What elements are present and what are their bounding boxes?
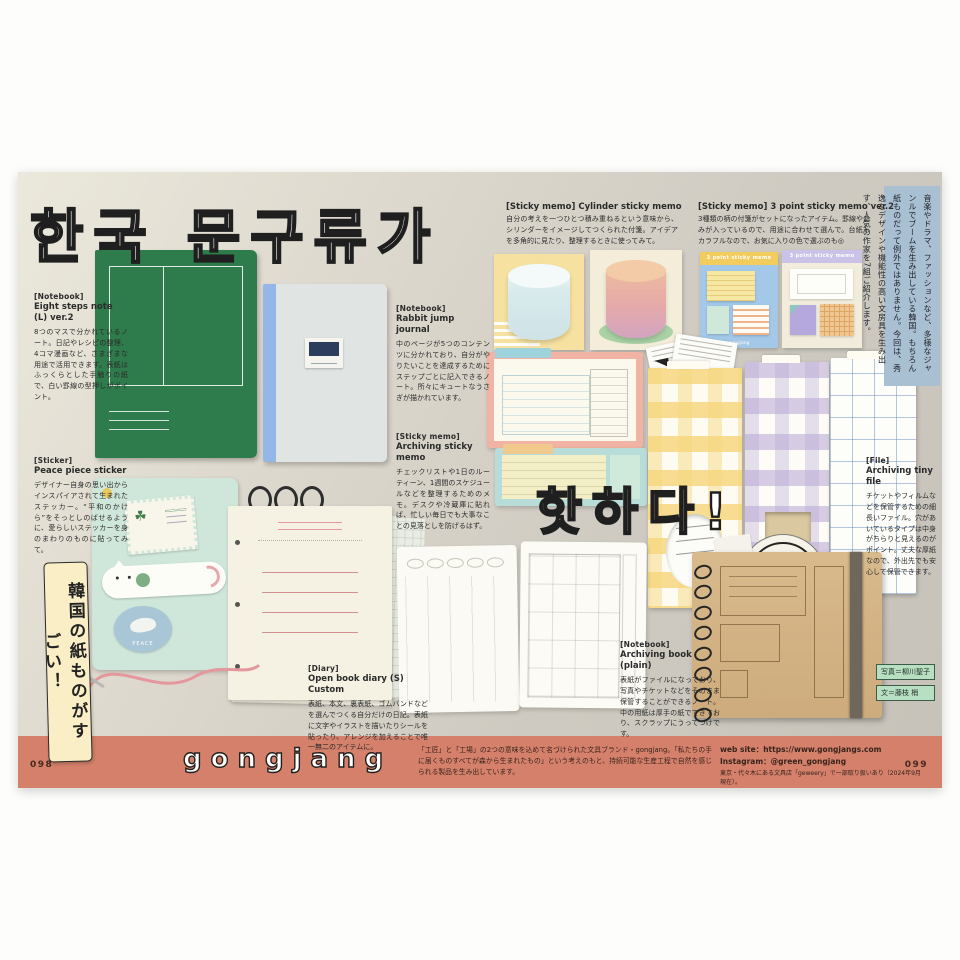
caption-open-book-diary: [Diary] Open book diary (S) Custom 表紙、本文…	[308, 664, 428, 753]
cylinder-memo-card-blue	[494, 254, 584, 350]
three-point-memo-card-2: 3 point sticky memo	[782, 250, 862, 348]
caption-category: [Notebook]	[34, 292, 128, 301]
caption-description: チェックリストや1日のルーティーン、1週間のスケジュールなどを整理するためのメモ…	[396, 467, 490, 532]
caption-archiving-sticky-memo: [Sticky memo] Archiving sticky memo チェック…	[396, 432, 490, 532]
caption-name: Archiving tiny file	[866, 466, 936, 488]
three-point-memo-card-1: 3 point sticky memo gongjang	[700, 252, 778, 348]
striped-memo	[733, 305, 769, 335]
file-tab	[667, 361, 709, 369]
card-header-label: 3 point sticky memo	[782, 250, 862, 263]
caption-category: [Diary]	[308, 664, 428, 673]
caption-category: [File]	[866, 456, 936, 465]
caption-category: [Sticky memo]	[506, 202, 575, 212]
pink-double-rule	[278, 522, 342, 530]
debossed-label-frame	[720, 566, 806, 616]
debossed-side-frame	[814, 566, 844, 698]
caption-description: 表紙、本文、裏表紙、ゴムバンドなどを選んでつくる自分だけの日記。表紙に文字やイラ…	[308, 699, 428, 753]
footer-bar: 098 gongjang 「工匠」と「工場」の2つの意味を込めて名づけられた文具…	[18, 736, 942, 788]
brand-links: web site：https://www.gongjangs.com Insta…	[720, 744, 926, 787]
caption-description: 中のページが5つのコンテンツに分かれており、自分がやりたいことを達成するためにス…	[396, 339, 490, 404]
elastic-band	[850, 552, 862, 718]
caption-description: 8つのマスで分かれているノート。日記やレシピの整理、4コマ漫画など、さまざまな用…	[34, 327, 128, 403]
caption-category: [Notebook]	[396, 304, 490, 313]
kraft-archiving-book	[692, 552, 882, 718]
cat-sticker	[101, 561, 227, 599]
pad-sheet	[494, 359, 636, 441]
planner-column	[590, 369, 628, 437]
main-title-hangul: 한국 문구류가	[30, 190, 440, 274]
rabbit-jump-journal	[263, 284, 387, 462]
mint-memo	[707, 306, 729, 334]
text-credit: 文＝藤枝 梢	[876, 685, 935, 701]
caption-eight-steps-note: [Notebook] Eight steps note (L) ver.2 8つ…	[34, 292, 128, 403]
instagram-handle: Instagram：@green_gongjang	[720, 756, 926, 768]
yellow-lined-memo	[707, 271, 755, 301]
caption-name: Eight steps note (L) ver.2	[34, 302, 128, 324]
caption-heading: [Sticky memo] Cylinder sticky memo	[506, 202, 678, 212]
magazine-spread: 3 point sticky memo gongjang 3 point sti…	[18, 172, 942, 788]
caption-name: Open book diary (S) Custom	[308, 674, 428, 696]
caption-name: Peace piece sticker	[34, 466, 128, 477]
caption-description: 表紙がファイルになっており、写真やチケットなどをそのまま保管することができるノー…	[620, 675, 720, 740]
planner-box	[502, 375, 590, 435]
orange-grid-memo	[820, 304, 854, 336]
dotted-rule	[258, 540, 362, 541]
white-frame-memo	[790, 269, 853, 299]
intro-text-box: 音楽やドラマ、ファッションなど、多様なジャンルでブームを生み出している韓国。もち…	[884, 186, 940, 386]
caption-3-point-sticky-memo: [Sticky memo] 3 point sticky memo ver.2 …	[698, 202, 870, 247]
caption-archiving-book: [Notebook] Archiving book (plain) 表紙がファイ…	[620, 640, 720, 740]
caption-category: [Sticker]	[34, 456, 128, 465]
caption-category: [Sticky memo]	[396, 432, 490, 441]
pad-tab	[503, 444, 553, 454]
caption-description: チケットやフィルムなどを保管するための細長いファイル。穴があいているタイプは中身…	[866, 491, 936, 578]
debossed-frame	[720, 624, 780, 662]
caption-archiving-tiny-file: [File] Archiving tiny file チケットやフィルムなどを保…	[866, 456, 936, 578]
notebook-grid-lines	[109, 266, 243, 386]
caption-category: [Notebook]	[620, 640, 720, 649]
archiving-weekly-memo-pad	[487, 352, 643, 448]
file-tab	[762, 355, 800, 363]
card-header-label: 3 point sticky memo	[700, 252, 778, 265]
caption-name: Archiving book (plain)	[620, 650, 720, 672]
stamp-sticker	[124, 495, 198, 555]
blue-cylinder-memo	[508, 264, 570, 340]
debossed-square	[720, 670, 748, 698]
journal-label	[305, 338, 343, 368]
cylinder-memo-card-pink	[590, 250, 682, 350]
pad-tab	[495, 348, 551, 358]
photo-credit: 写真＝柳川聖子	[876, 664, 935, 680]
shop-note: 東京・代々木にある文具店「geweery」で一部取り扱いあり（2024年9月現在…	[720, 769, 926, 787]
journal-spine	[263, 284, 276, 462]
caption-name: Rabbit jump journal	[396, 314, 490, 336]
caption-description: 3種類の柄の付箋がセットになったアイテム。罫線やあみが入っているので、用途に合わ…	[698, 214, 870, 247]
caption-name: 3 point sticky memo ver.2	[770, 202, 894, 212]
page-background: 3 point sticky memo gongjang 3 point sti…	[0, 0, 960, 960]
caption-description: デザイナー自身の思い出からインスパイアされて生まれたステッカー。“平和のかけら”…	[34, 480, 128, 556]
notebook-rule-lines	[109, 403, 169, 430]
brand-description: 「工匠」と「工場」の2つの意味を込めて名づけられた文具ブランド・gongjang…	[418, 745, 712, 778]
purple-memo	[790, 305, 816, 335]
caption-cylinder-sticky-memo: [Sticky memo] Cylinder sticky memo 自分の考え…	[506, 202, 678, 247]
caption-name: Cylinder sticky memo	[578, 202, 681, 212]
sub-title-hangul: 핫하다!	[536, 472, 737, 544]
pink-cylinder-memo	[606, 260, 666, 338]
caption-name: Archiving sticky memo	[396, 442, 490, 464]
caption-heading: [Sticky memo] 3 point sticky memo ver.2	[698, 202, 870, 212]
website-url: web site：https://www.gongjangs.com	[720, 744, 926, 756]
vertical-banner: 韓国の紙ものがすごい！	[43, 561, 92, 762]
caption-description: 自分の考えを一つひとつ積み重ねるという意味から、シリンダーをイメージしてつくられ…	[506, 214, 678, 247]
credits: 写真＝柳川聖子 文＝藤枝 梢	[876, 664, 935, 701]
caption-rabbit-jump-journal: [Notebook] Rabbit jump journal 中のページが5つの…	[396, 304, 490, 404]
page-number-right: 099	[905, 760, 928, 770]
pink-cord-and-needle	[76, 642, 266, 712]
caption-category: [Sticky memo]	[698, 202, 767, 212]
caption-peace-piece-sticker: [Sticker] Peace piece sticker デザイナー自身の思い…	[34, 456, 128, 556]
